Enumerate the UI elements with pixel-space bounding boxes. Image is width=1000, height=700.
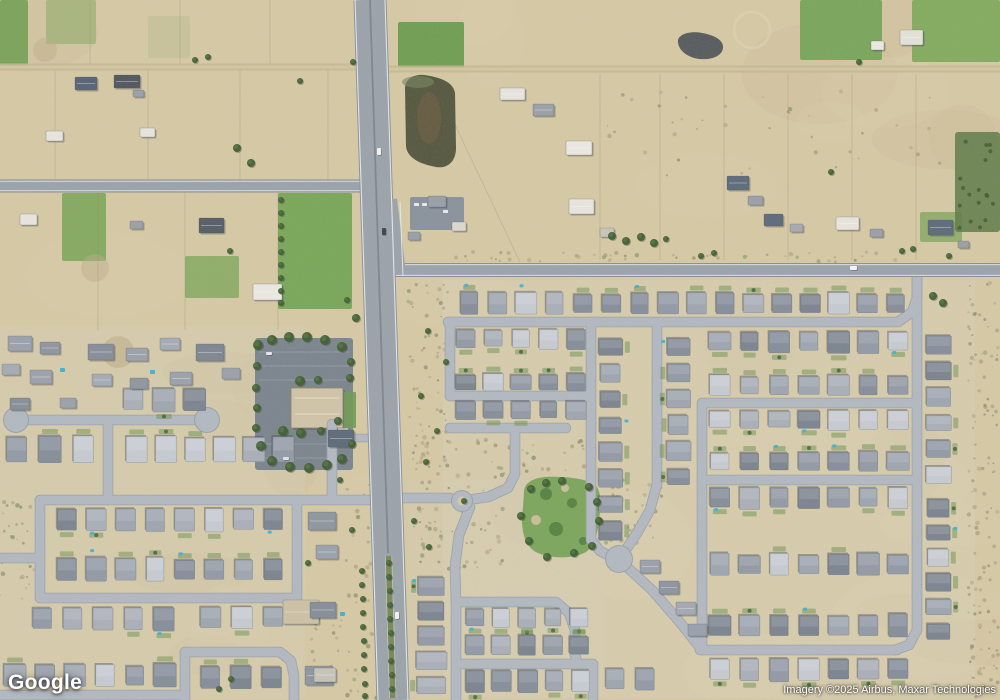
google-logo[interactable]: Google <box>8 671 82 695</box>
map-viewport[interactable]: Google Imagery ©2025 Airbus, Maxar Techn… <box>0 0 1000 700</box>
satellite-imagery <box>0 0 1000 700</box>
imagery-attribution: Imagery ©2025 Airbus, Maxar Technologies <box>783 684 996 696</box>
